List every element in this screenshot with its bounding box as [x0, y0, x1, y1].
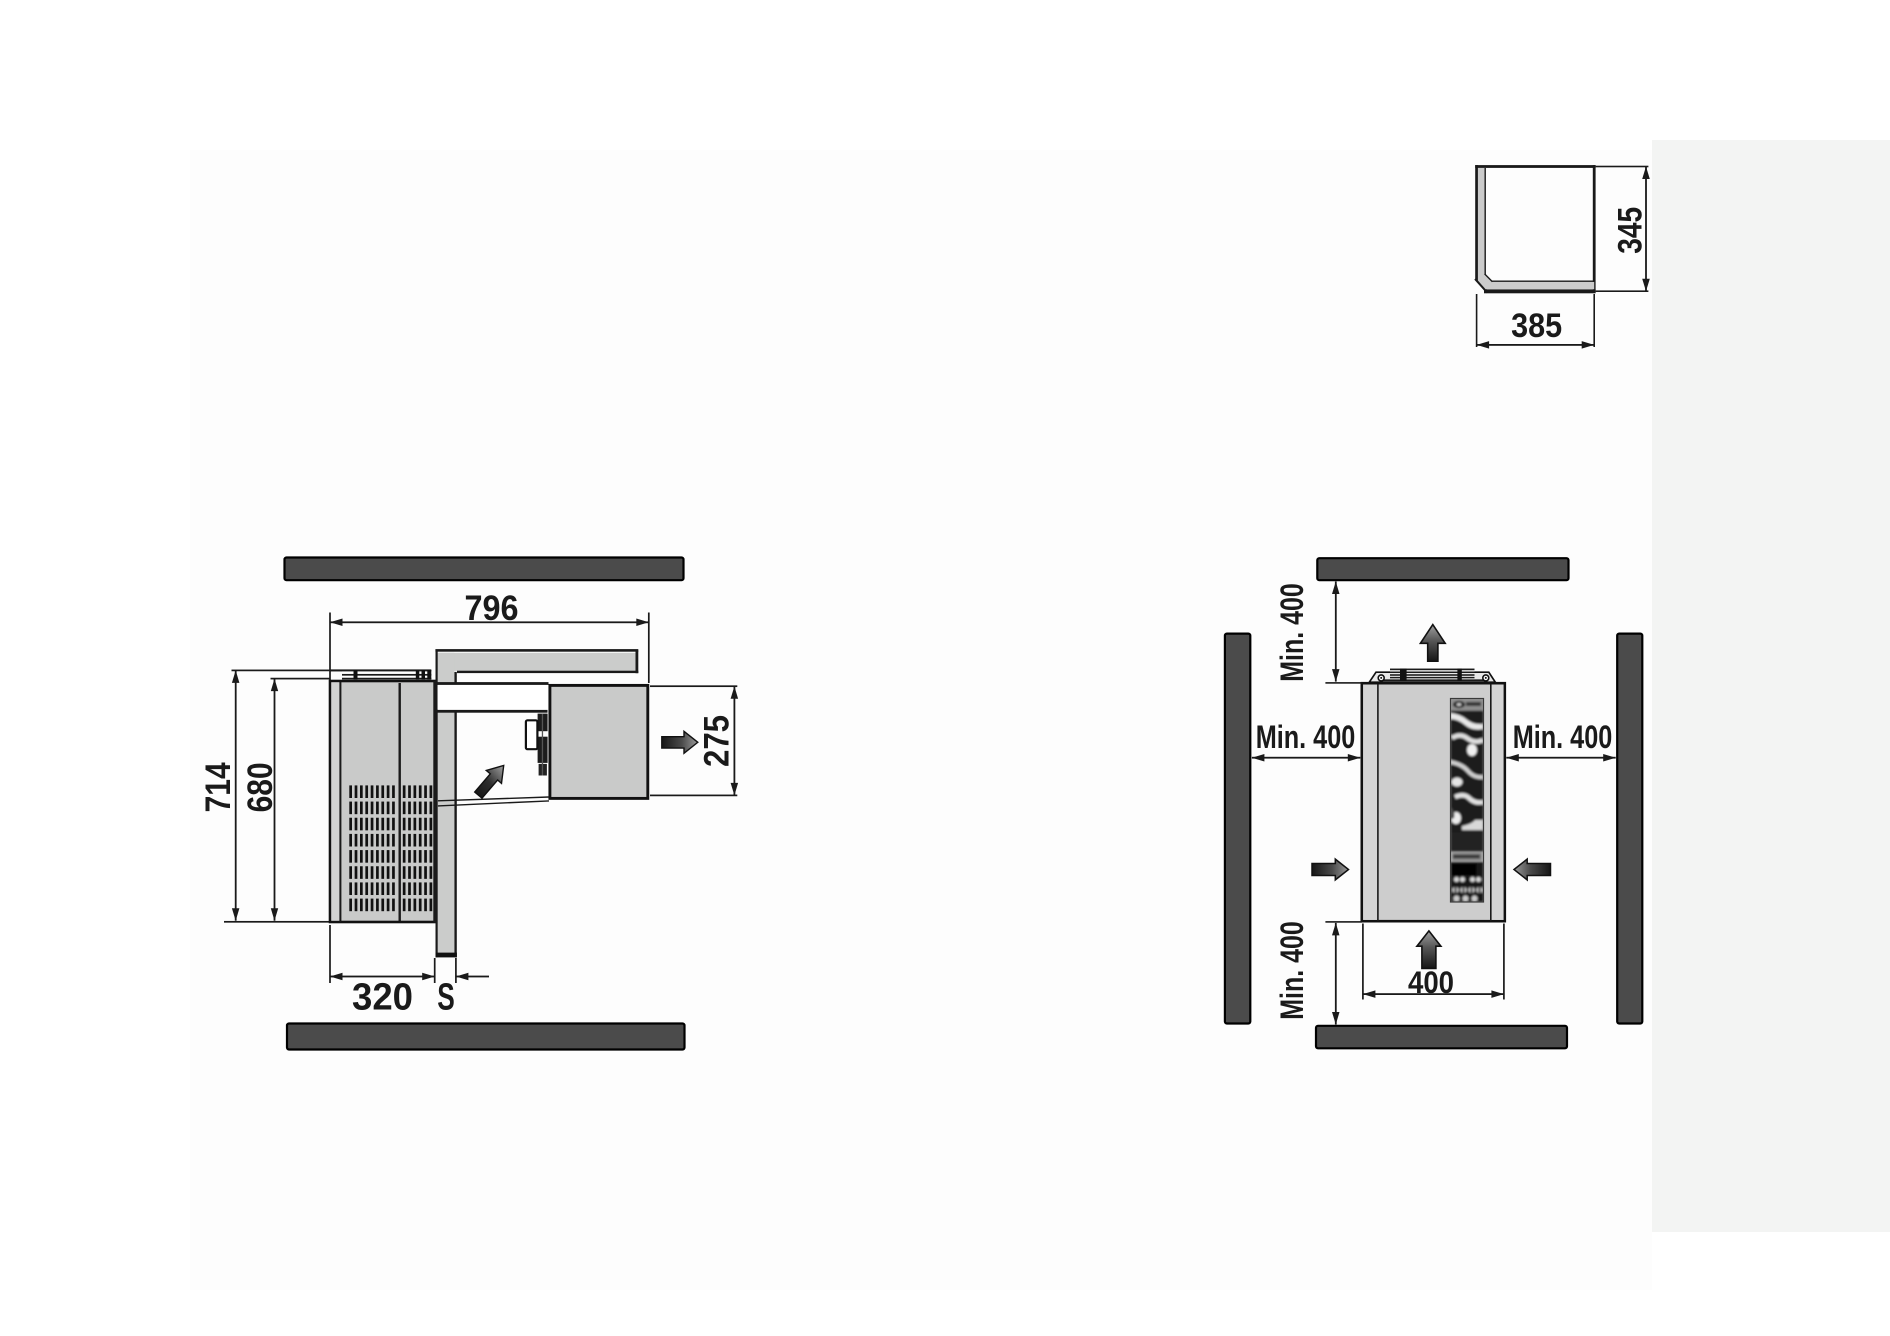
- svg-text:400: 400: [1408, 965, 1454, 1000]
- svg-text:Min. 400: Min. 400: [1513, 720, 1613, 756]
- svg-text:680: 680: [241, 762, 280, 812]
- svg-text:320: 320: [352, 975, 413, 1018]
- svg-text:S: S: [437, 975, 455, 1018]
- svg-text:Min. 400: Min. 400: [1275, 583, 1311, 682]
- svg-text:714: 714: [199, 762, 238, 812]
- svg-text:796: 796: [464, 589, 518, 628]
- svg-text:345: 345: [1610, 207, 1649, 254]
- svg-text:Min. 400: Min. 400: [1275, 921, 1311, 1020]
- svg-text:385: 385: [1511, 305, 1562, 344]
- svg-text:Min. 400: Min. 400: [1256, 720, 1356, 756]
- svg-text:275: 275: [698, 715, 737, 767]
